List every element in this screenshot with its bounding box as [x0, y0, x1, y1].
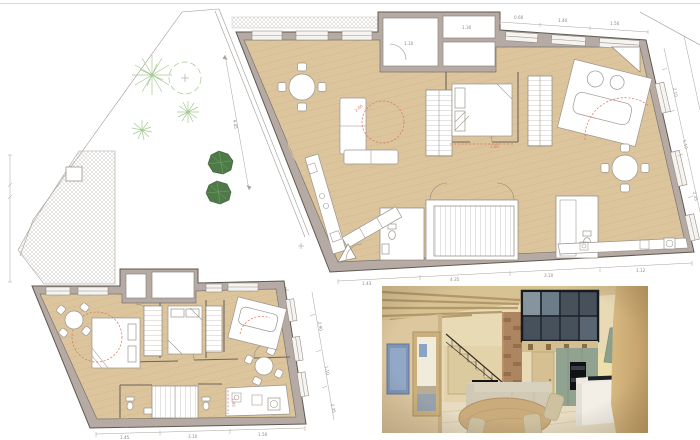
stairs-right-flight — [528, 76, 552, 146]
svg-text:0.60: 0.60 — [514, 15, 524, 20]
block-room-c — [443, 42, 495, 66]
tree-center-mark — [181, 74, 189, 82]
interior-render — [382, 286, 648, 433]
vignette — [382, 286, 648, 433]
lot-line-top-right — [640, 12, 700, 45]
tree-burst-small — [132, 120, 152, 140]
lower-floor-plan: 1.45 2.90 1.10 2.35 1.45 3.10 1.50 — [32, 269, 337, 440]
svg-text:2.90: 2.90 — [317, 321, 324, 331]
block-label-a: 1.10 — [404, 41, 414, 46]
svg-text:3.10: 3.10 — [544, 273, 554, 278]
tree-burst-large — [132, 55, 172, 95]
interior-render-photo — [382, 286, 648, 433]
garden-dim-label: 4.45 — [232, 119, 239, 129]
svg-text:4.35: 4.35 — [450, 277, 460, 282]
windows-top-left — [252, 31, 372, 40]
red-note-bed: 1.60 — [490, 144, 499, 149]
lot-top-edge — [182, 9, 219, 12]
bush-1 — [208, 151, 233, 174]
svg-text:1.10: 1.10 — [682, 139, 689, 149]
bed-middle — [452, 84, 512, 136]
block-room-lower-b — [152, 272, 194, 298]
tree-burst-medium — [177, 101, 199, 123]
stairs-left-flight — [426, 90, 452, 156]
svg-text:2.10: 2.10 — [672, 87, 679, 97]
garden-shed — [66, 167, 82, 181]
svg-text:2.35: 2.35 — [330, 403, 337, 413]
stairs-upper-flight-lower — [144, 306, 162, 356]
svg-text:1.12: 1.12 — [636, 268, 646, 273]
survey-marks — [283, 243, 304, 293]
bed-left-lower — [92, 318, 140, 368]
bed-middle-lower — [168, 306, 202, 354]
svg-text:1.50: 1.50 — [258, 432, 268, 437]
block-label-b: 1.30 — [462, 25, 472, 30]
svg-text:1.50: 1.50 — [610, 21, 620, 26]
block-room-lower-a — [126, 274, 146, 298]
svg-text:1.10: 1.10 — [324, 365, 331, 375]
wardrobe-shelves — [206, 306, 222, 352]
stairs-bottom-lower — [152, 386, 198, 418]
architectural-sheet: 4.45 1.10 1.30 — [0, 0, 700, 440]
svg-text:2.35: 2.35 — [692, 191, 699, 201]
sheet-top-border — [0, 3, 700, 4]
svg-text:1.45: 1.45 — [120, 435, 130, 440]
garden-left-dimension — [8, 155, 12, 282]
upper-floor-plan: 1.10 1.30 — [232, 12, 700, 293]
svg-text:3.10: 3.10 — [188, 434, 198, 439]
svg-text:1.43: 1.43 — [362, 281, 372, 286]
svg-text:1.40: 1.40 — [558, 18, 568, 23]
red-note-lower: 1.45 — [231, 398, 236, 408]
bush-2 — [206, 181, 231, 204]
